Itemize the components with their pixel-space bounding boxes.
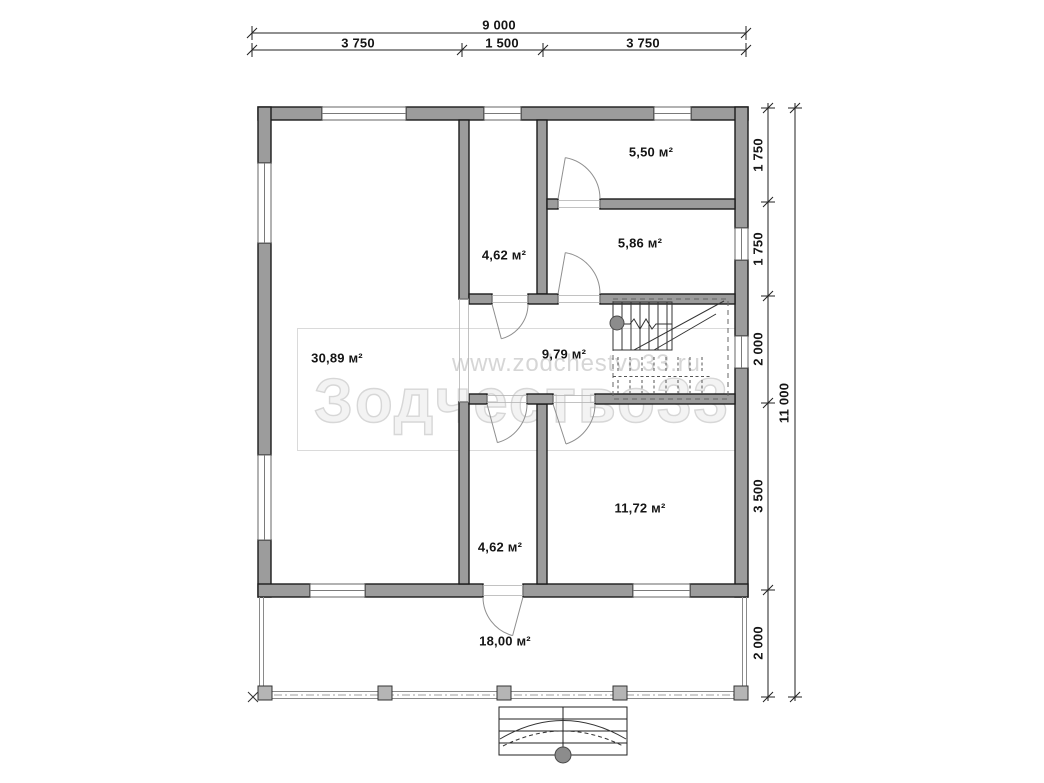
corner-x-mark: [248, 692, 258, 702]
dim-top-seg-1: 3 750: [341, 36, 375, 51]
room-label-bottom-right: 11,72 м²: [615, 501, 666, 516]
dim-right-seg-5: 2 000: [751, 626, 766, 660]
floor-plan-canvas: www.zodchestvo33.ru Зодчество33: [0, 0, 1044, 783]
dim-right-seg-2: 1 750: [751, 232, 766, 266]
dim-top-total: 9 000: [482, 18, 516, 33]
room-label-top-center: 4,62 м²: [482, 248, 526, 263]
entry-steps: [499, 707, 627, 763]
room-label-hall: 9,79 м²: [542, 347, 586, 362]
plan-drawing: [0, 0, 1044, 783]
stairs: [610, 299, 728, 399]
entry-column-dot: [555, 747, 571, 763]
room-label-bottom-center: 4,62 м²: [478, 540, 522, 555]
dim-right-seg-3: 2 000: [751, 332, 766, 366]
room-label-top-right-upper: 5,50 м²: [629, 145, 673, 160]
stair-column-dot: [610, 316, 624, 330]
dim-top-seg-2: 1 500: [485, 36, 519, 51]
dim-right-total: 11 000: [777, 383, 792, 423]
room-label-top-right-lower: 5,86 м²: [618, 236, 662, 251]
dim-right-seg-4: 3 500: [751, 479, 766, 513]
room-label-left-living: 30,89 м²: [311, 351, 363, 366]
dim-right-seg-1: 1 750: [751, 138, 766, 172]
terrace-posts: [258, 686, 748, 700]
room-label-terrace: 18,00 м²: [479, 634, 531, 649]
dim-top-seg-3: 3 750: [626, 36, 660, 51]
interior-walls: [459, 120, 735, 584]
